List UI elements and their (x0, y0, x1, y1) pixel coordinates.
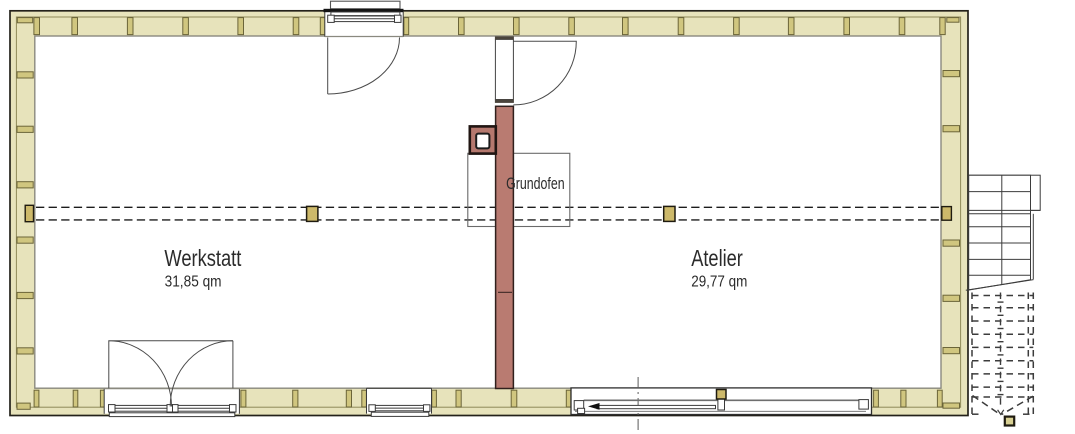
svg-text:Atelier: Atelier (691, 246, 743, 271)
svg-text:Grundofen: Grundofen (506, 175, 565, 193)
svg-text:31,85 qm: 31,85 qm (165, 274, 222, 291)
svg-text:29,77 qm: 29,77 qm (691, 274, 747, 291)
svg-text:Werkstatt: Werkstatt (164, 246, 241, 271)
